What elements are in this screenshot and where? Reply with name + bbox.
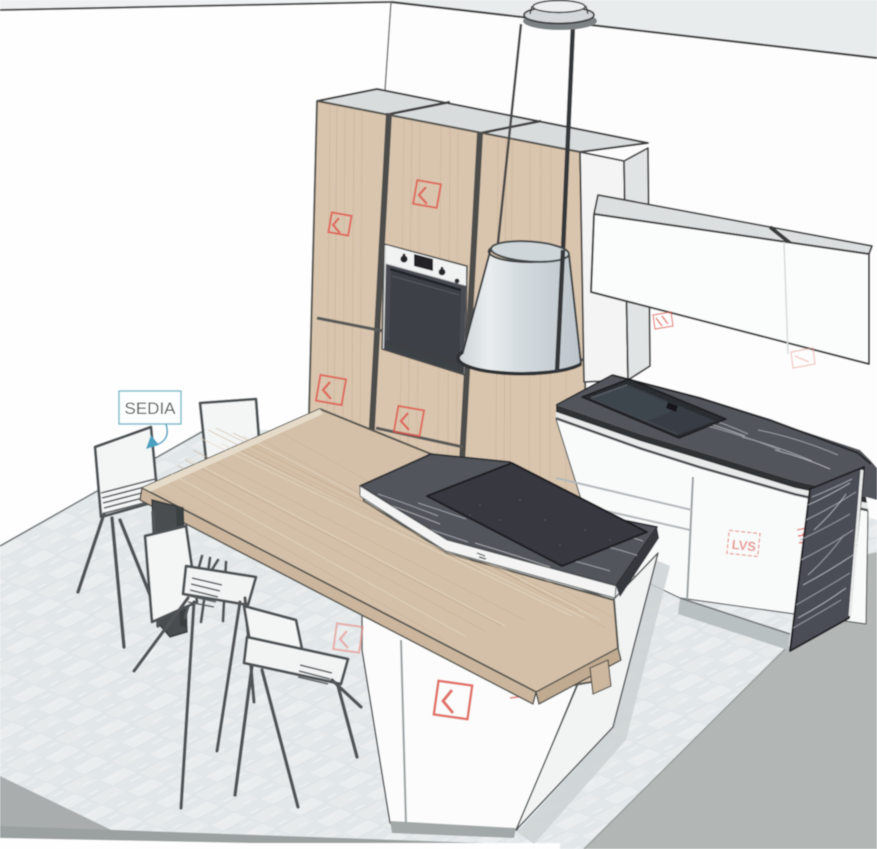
svg-text:SEDIA: SEDIA	[124, 399, 176, 418]
svg-text:LVS: LVS	[731, 537, 757, 554]
